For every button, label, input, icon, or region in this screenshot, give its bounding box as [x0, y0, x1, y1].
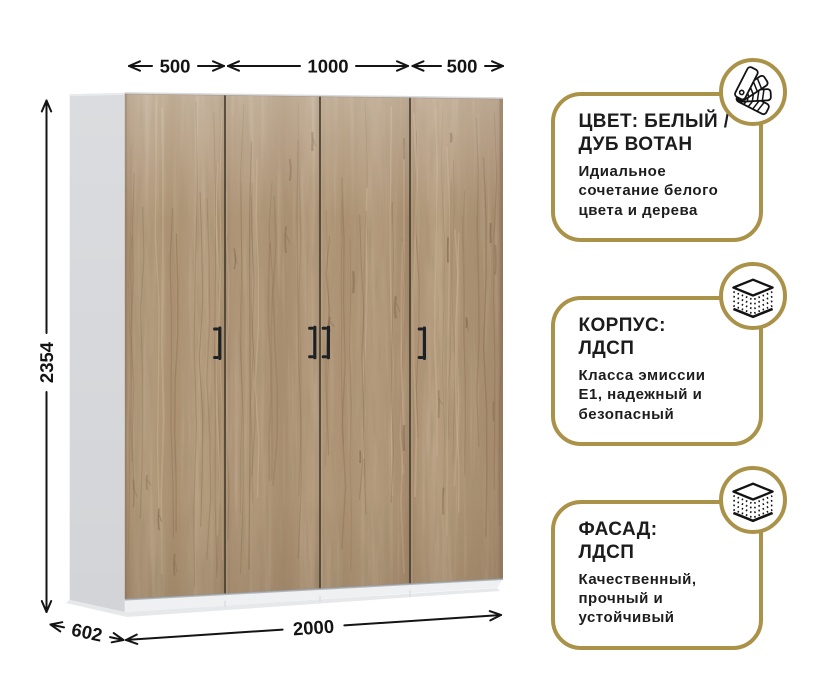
svg-text:2000: 2000 [292, 616, 334, 640]
svg-text:1000: 1000 [307, 56, 348, 77]
svg-text:2354: 2354 [36, 341, 57, 383]
svg-text:500: 500 [447, 56, 478, 77]
svg-text:602: 602 [70, 619, 105, 646]
svg-text:500: 500 [160, 56, 191, 77]
